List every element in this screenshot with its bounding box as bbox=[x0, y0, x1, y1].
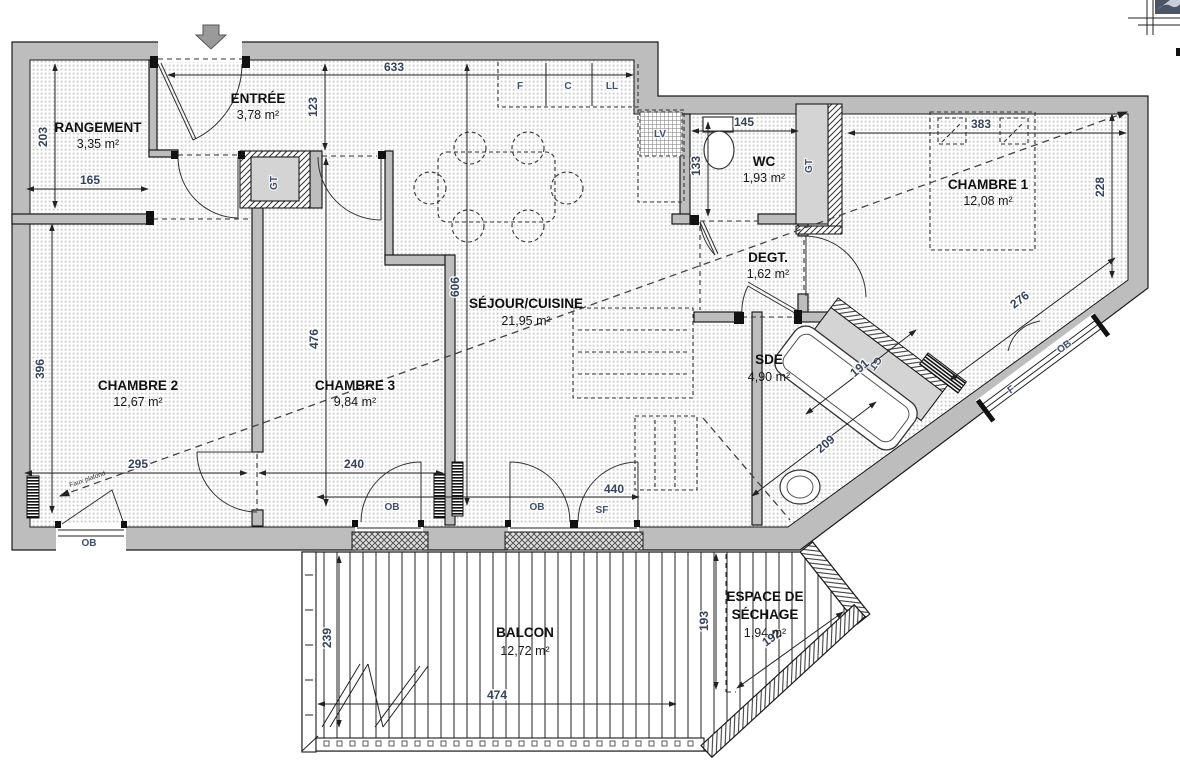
gt-shaft-wc: GT bbox=[796, 104, 842, 234]
dim-606: 606 bbox=[448, 277, 462, 297]
room-wc: WC bbox=[753, 154, 776, 169]
area-chambre3: 9,84 m² bbox=[334, 395, 376, 409]
area-degt: 1,62 m² bbox=[747, 267, 789, 281]
dim-396: 396 bbox=[33, 359, 47, 379]
area-entree: 3,78 m² bbox=[237, 108, 279, 122]
room-balcon: BALCON bbox=[496, 625, 554, 640]
sink-sde bbox=[780, 470, 820, 504]
dim-383: 383 bbox=[971, 117, 991, 131]
floor-plan: GT GT GT F C LL LV bbox=[0, 0, 1180, 780]
balcony-zone bbox=[302, 542, 870, 757]
dim-240: 240 bbox=[344, 457, 364, 471]
room-sechage-line2: SÉCHAGE bbox=[732, 607, 799, 622]
balcony-railing bbox=[316, 738, 704, 751]
room-degt: DEGT. bbox=[748, 250, 788, 265]
dim-193: 193 bbox=[697, 611, 711, 631]
gt-label-2: GT bbox=[804, 159, 815, 173]
dim-133: 133 bbox=[689, 156, 703, 176]
floor-plan-drawing: GT GT GT F C LL LV bbox=[0, 0, 1180, 780]
window-tag-ob-3: OB bbox=[530, 502, 545, 513]
room-sechage-line1: ESPACE DE bbox=[726, 589, 803, 604]
room-entree: ENTRÉE bbox=[231, 91, 286, 106]
corner-registration-mark bbox=[1128, 0, 1180, 56]
gt-label-1: GT bbox=[269, 176, 280, 190]
logo-fragment bbox=[1155, 0, 1180, 14]
area-chambre2: 12,67 m² bbox=[113, 395, 162, 409]
washer-label: LL bbox=[606, 81, 618, 92]
dim-474: 474 bbox=[487, 688, 507, 702]
dim-295: 295 bbox=[128, 457, 148, 471]
gt-shaft-entree: GT bbox=[240, 151, 310, 208]
cooker-label: C bbox=[564, 81, 571, 92]
area-rangement: 3,35 m² bbox=[77, 137, 119, 151]
dim-476: 476 bbox=[307, 329, 321, 349]
window-tag-ob-2: OB bbox=[385, 502, 400, 513]
window-tag-ob-1: OB bbox=[82, 538, 97, 549]
dim-633: 633 bbox=[384, 60, 404, 74]
area-wc: 1,93 m² bbox=[743, 171, 785, 185]
window-tag-sf: SF bbox=[596, 505, 609, 516]
room-chambre2: CHAMBRE 2 bbox=[98, 378, 178, 393]
dim-123: 123 bbox=[306, 97, 320, 117]
room-sde: SDE bbox=[755, 352, 783, 367]
dim-165: 165 bbox=[80, 173, 100, 187]
room-chambre3: CHAMBRE 3 bbox=[315, 378, 396, 393]
fridge-label: F bbox=[517, 81, 523, 92]
dishwasher-label: LV bbox=[654, 129, 666, 140]
dim-203: 203 bbox=[36, 127, 50, 147]
room-rangement: RANGEMENT bbox=[55, 120, 143, 135]
dim-228: 228 bbox=[1093, 177, 1107, 197]
room-sejour: SÉJOUR/CUISINE bbox=[469, 296, 583, 311]
balcony-decking bbox=[324, 550, 844, 752]
area-sechage: 1,94 m² bbox=[744, 626, 786, 640]
area-balcon: 12,72 m² bbox=[500, 644, 549, 658]
dim-440: 440 bbox=[604, 482, 624, 496]
balcony-left-screen bbox=[302, 552, 318, 752]
area-chambre1: 12,08 m² bbox=[963, 194, 1012, 208]
room-chambre1: CHAMBRE 1 bbox=[948, 177, 1029, 192]
dim-145: 145 bbox=[734, 115, 754, 129]
area-sejour: 21,95 m² bbox=[501, 314, 550, 328]
dim-239: 239 bbox=[320, 628, 334, 648]
area-sde: 4,90 m² bbox=[748, 370, 790, 384]
